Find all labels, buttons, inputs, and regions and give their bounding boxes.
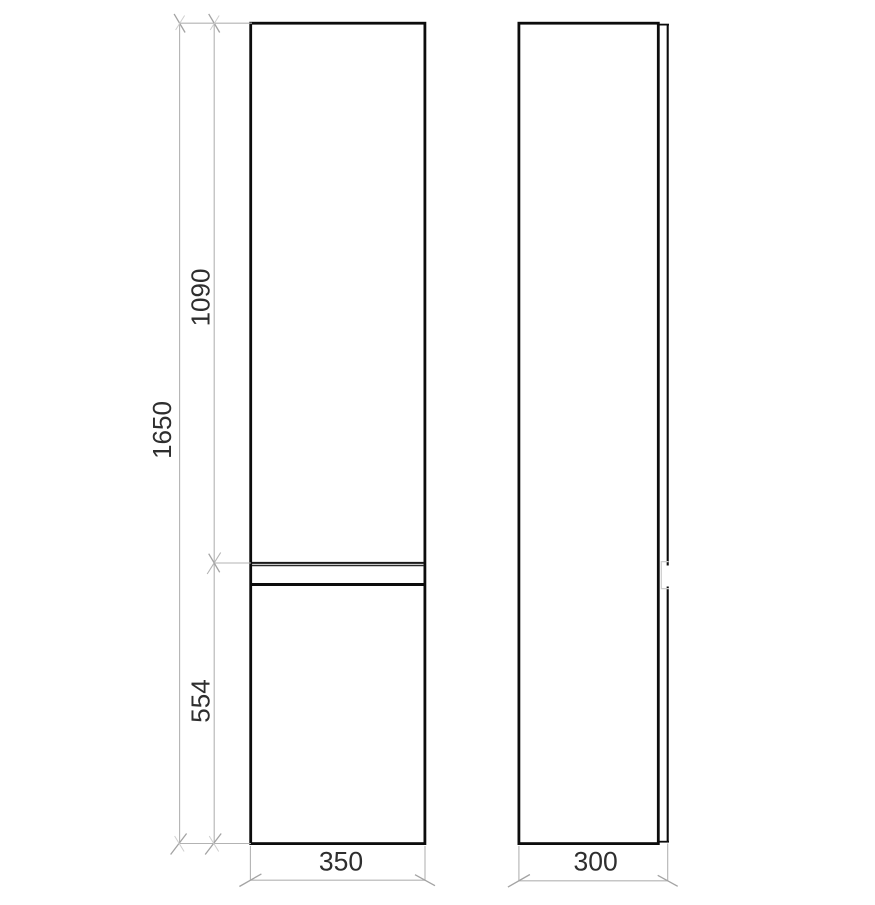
- svg-text:554: 554: [186, 679, 216, 722]
- svg-text:1090: 1090: [186, 269, 216, 327]
- svg-text:350: 350: [319, 847, 363, 877]
- svg-text:1650: 1650: [147, 401, 177, 459]
- svg-text:300: 300: [573, 847, 617, 877]
